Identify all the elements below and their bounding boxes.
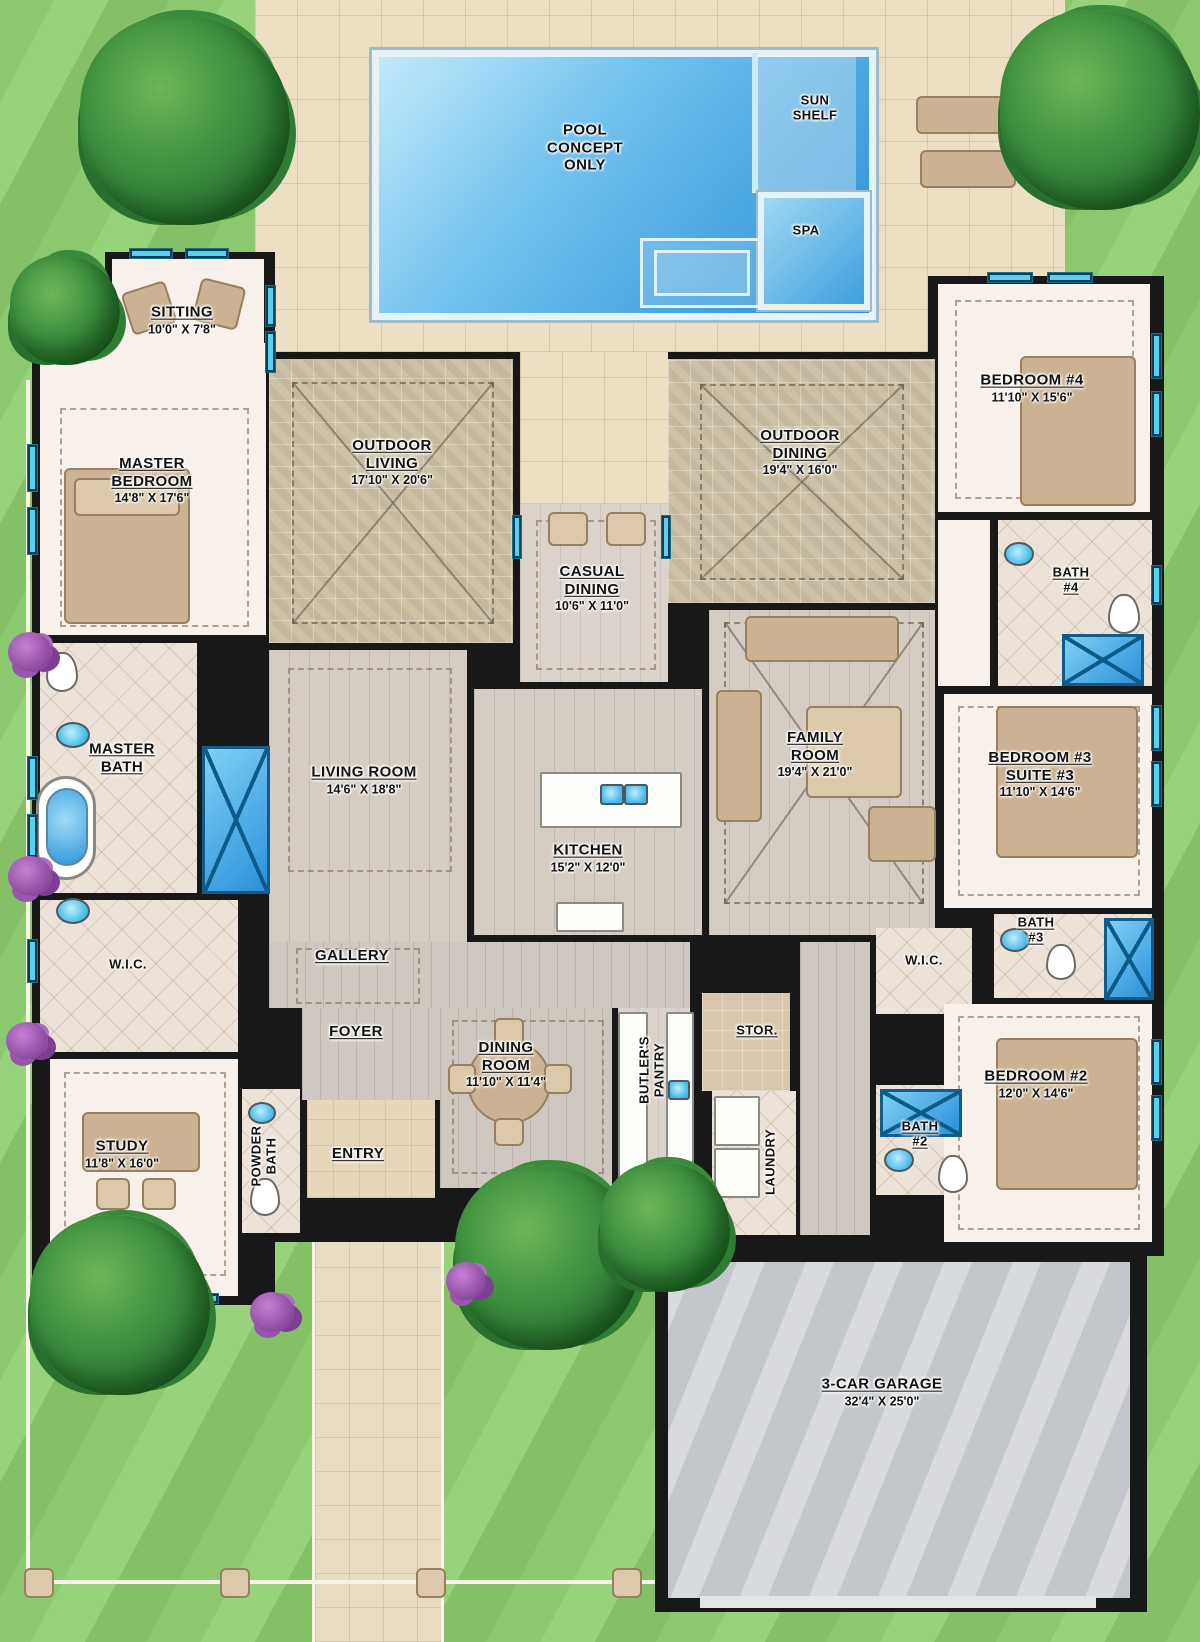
window-marker: [266, 332, 275, 372]
tree: [10, 255, 120, 365]
bedroom3-bed: [996, 706, 1138, 858]
hall-bedroom4: [938, 520, 990, 686]
window-marker: [28, 445, 37, 491]
window-marker: [662, 516, 670, 558]
lounge-chair: [916, 96, 1012, 134]
property-line-west: [26, 380, 30, 1584]
kitchen-sink: [624, 784, 648, 805]
sink: [248, 1102, 276, 1124]
tree: [80, 15, 290, 225]
tree: [30, 1215, 210, 1395]
outdoor-dining-ceiling: [700, 384, 904, 580]
window-marker: [1152, 392, 1161, 436]
dining-chair: [494, 1118, 524, 1146]
master-shower: [202, 746, 270, 894]
window-marker: [988, 273, 1032, 282]
study-chair: [142, 1178, 176, 1210]
lanai-line-south: [28, 1580, 670, 1584]
lanai-post: [24, 1568, 54, 1598]
sink: [56, 898, 90, 924]
tree: [600, 1162, 730, 1292]
window-marker: [1152, 1096, 1161, 1140]
sun-shelf: [758, 55, 856, 193]
sink: [1004, 542, 1034, 566]
toilet: [1108, 594, 1140, 634]
window-marker: [28, 508, 37, 554]
family-ottoman: [806, 706, 902, 798]
master-bed-pillows: [74, 478, 180, 516]
dining-chair: [494, 1018, 524, 1046]
lanai-post: [220, 1568, 250, 1598]
washer: [714, 1096, 760, 1146]
sink: [56, 722, 90, 748]
dryer: [714, 1148, 760, 1198]
butlers-counter: [618, 1012, 648, 1186]
window-marker: [1152, 334, 1161, 378]
kitchen-sink: [600, 784, 624, 805]
casual-chair: [548, 512, 588, 546]
room-foyer: [302, 1008, 440, 1100]
window-marker: [513, 516, 521, 558]
window-marker: [130, 249, 172, 258]
bedroom2-bed: [996, 1038, 1138, 1190]
room-entry: [307, 1100, 435, 1198]
living-tray: [288, 668, 452, 872]
window-marker: [1152, 706, 1161, 750]
study-chair: [96, 1178, 130, 1210]
bath2-shower: [880, 1089, 962, 1137]
bath3-shower: [1104, 918, 1154, 1000]
dining-chair: [448, 1064, 476, 1094]
garage-door: [700, 1596, 1096, 1608]
flower-bush: [250, 1292, 294, 1332]
butlers-sink: [668, 1080, 690, 1100]
window-marker: [266, 286, 275, 326]
sink: [1000, 928, 1030, 952]
bedroom4-bed: [1020, 356, 1136, 506]
stove: [556, 902, 624, 932]
tree: [1000, 10, 1200, 210]
hallway-garage: [800, 942, 870, 1235]
room-storage: [702, 993, 790, 1091]
flower-bush: [446, 1262, 486, 1300]
lanai-post: [416, 1568, 446, 1598]
toilet: [250, 1178, 280, 1216]
family-chair: [868, 806, 936, 862]
dining-chair: [544, 1064, 572, 1094]
flower-bush: [6, 1022, 48, 1060]
deck-strip: [520, 352, 668, 504]
toilet: [1046, 944, 1076, 980]
sink: [884, 1148, 914, 1172]
window-marker: [1152, 762, 1161, 806]
lounge-chair: [920, 150, 1016, 188]
casual-chair: [606, 512, 646, 546]
outdoor-living-ceiling: [292, 382, 494, 624]
room-garage: [668, 1262, 1130, 1598]
bath4-shower: [1062, 634, 1144, 686]
spa: [758, 192, 870, 310]
window-marker: [1048, 273, 1092, 282]
dining-table: [467, 1040, 551, 1124]
window-marker: [28, 815, 37, 857]
family-sofa: [716, 690, 762, 822]
study-desk: [82, 1112, 200, 1172]
master-tub-water: [46, 788, 88, 866]
room-wic-right: [876, 928, 972, 1014]
toilet: [938, 1155, 968, 1193]
window-marker: [1152, 566, 1161, 604]
window-marker: [1152, 1040, 1161, 1084]
flower-bush: [8, 632, 52, 672]
floor-plan: POOL CONCEPT ONLY SUN SHELF SPA SITTING …: [0, 0, 1200, 1642]
window-marker: [28, 940, 37, 982]
pool-steps-inner: [654, 250, 750, 296]
gallery-rug: [296, 948, 420, 1004]
family-sofa: [745, 616, 899, 662]
window-marker: [186, 249, 228, 258]
window-marker: [28, 757, 37, 799]
flower-bush: [8, 856, 52, 896]
lanai-post: [612, 1568, 642, 1598]
